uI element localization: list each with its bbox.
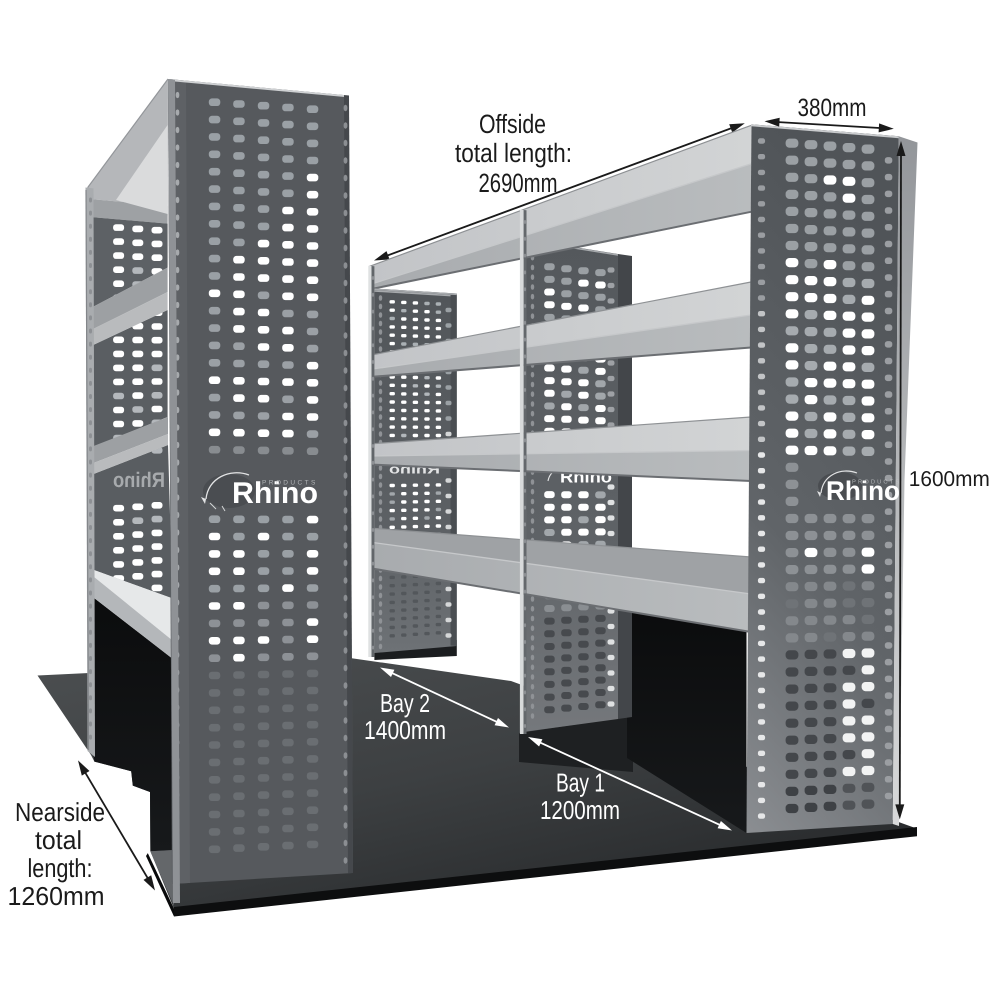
svg-text:1260mm: 1260mm [8,881,105,911]
svg-text:Offside: Offside [479,109,546,139]
svg-text:1200mm: 1200mm [540,795,620,825]
svg-text:Rhino: Rhino [113,469,165,492]
svg-text:PRODUCTS: PRODUCTS [852,479,901,486]
svg-text:1400mm: 1400mm [364,715,446,745]
svg-text:1600mm: 1600mm [909,467,990,491]
svg-text:Bay 2: Bay 2 [380,688,430,718]
svg-text:2690mm: 2690mm [479,168,558,198]
svg-text:total: total [35,825,82,855]
svg-text:Nearside: Nearside [15,797,105,827]
svg-text:length:: length: [28,853,93,883]
svg-text:total length:: total length: [455,138,572,168]
svg-text:PRODUCTS: PRODUCTS [262,480,318,487]
svg-text:380mm: 380mm [798,94,867,122]
svg-text:Bay 1: Bay 1 [556,768,605,798]
